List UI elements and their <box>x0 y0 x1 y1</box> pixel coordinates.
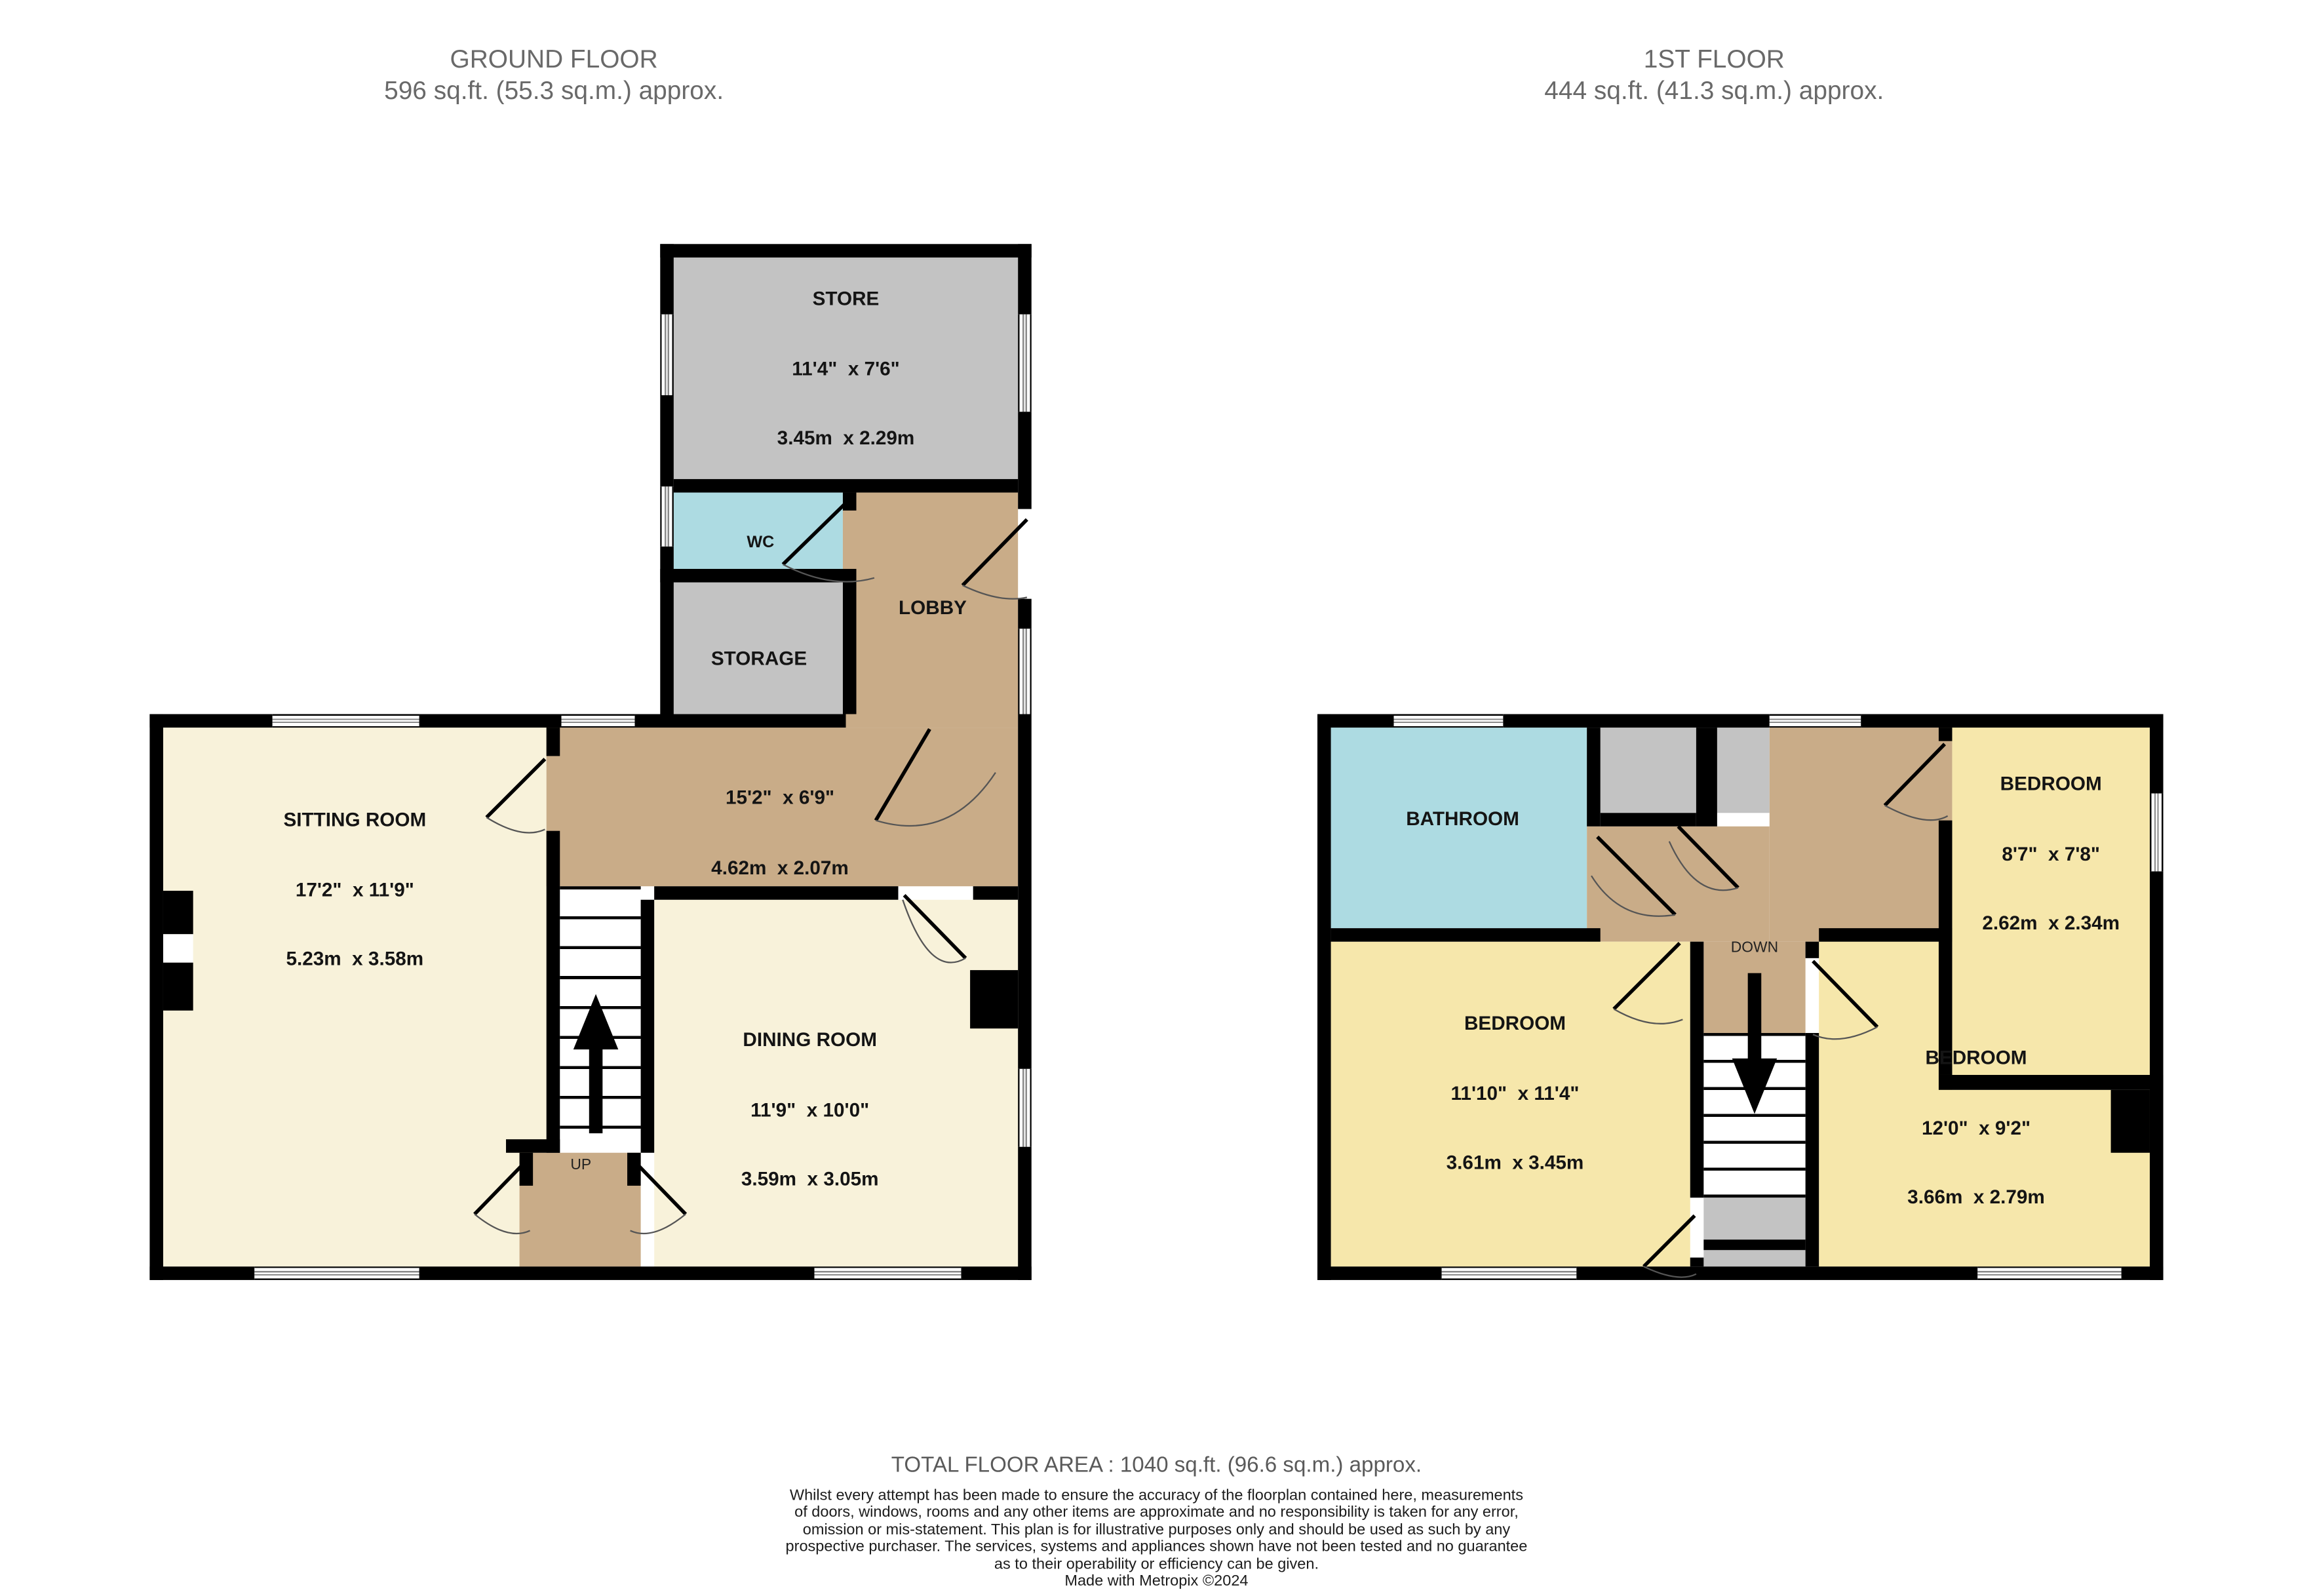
wall <box>627 1153 641 1186</box>
wall <box>1819 928 1952 942</box>
cupboard <box>1601 728 1696 813</box>
window <box>254 1266 419 1280</box>
ground-floor-area: 596 sq.ft. (55.3 sq.m.) approx. <box>180 75 928 106</box>
wall <box>660 395 674 486</box>
room-dims-imperial: 17'2" x 11'9" <box>283 878 426 901</box>
wall <box>660 244 674 314</box>
wall <box>419 1266 815 1280</box>
window <box>1442 1266 1577 1280</box>
wall <box>1587 728 1601 827</box>
wall <box>1331 928 1601 942</box>
up-label: UP <box>570 1121 591 1211</box>
room-name: DINING ROOM <box>741 1028 879 1051</box>
dining-room-label: DINING ROOM 11'9" x 10'0" 3.59m x 3.05m <box>741 982 879 1237</box>
wc-label: WC <box>747 495 774 592</box>
down-label: DOWN <box>1731 905 1778 994</box>
window <box>1018 1069 1032 1147</box>
room-name: LOBBY <box>899 596 967 619</box>
stair-direction: DOWN <box>1731 940 1778 958</box>
bathroom-label: BATHROOM <box>1406 761 1519 877</box>
wall <box>149 1266 254 1280</box>
wall <box>149 714 272 728</box>
stairs-down <box>1703 1033 1805 1197</box>
room-dims-metric: 4.62m x 2.07m <box>711 855 849 878</box>
disclaimer: Whilst every attempt has been made to en… <box>0 1488 2313 1590</box>
room-name: BEDROOM <box>1907 1046 2045 1069</box>
wall <box>520 1153 534 1186</box>
wall <box>1018 412 1032 509</box>
room-name: BEDROOM <box>1982 772 2120 795</box>
chimney-recess <box>163 934 193 962</box>
room-dims-imperial: 8'7" x 7'8" <box>1982 842 2120 865</box>
footer: TOTAL FLOOR AREA : 1040 sq.ft. (96.6 sq.… <box>0 1454 2313 1591</box>
wall <box>506 1139 560 1153</box>
credit-line: Made with Metropix ©2024 <box>0 1574 2313 1591</box>
storage-label: STORAGE <box>711 600 807 716</box>
stair-direction: UP <box>570 1158 591 1175</box>
room-dims-metric: 3.66m x 2.79m <box>1907 1185 2045 1208</box>
window <box>273 714 419 728</box>
ground-floor-title-block: GROUND FLOOR 596 sq.ft. (55.3 sq.m.) app… <box>180 45 928 107</box>
window <box>1018 629 1032 714</box>
disclaimer-line: as to their operability or efficiency ca… <box>0 1557 2313 1574</box>
wall <box>1018 244 1032 314</box>
room-name: STORAGE <box>711 647 807 670</box>
window <box>1018 315 1032 412</box>
wall <box>1703 1239 1805 1250</box>
wall <box>1806 942 1819 958</box>
wall <box>149 714 163 1280</box>
wall <box>1018 714 1032 1069</box>
window <box>660 315 674 395</box>
stair-cupboard <box>1703 1250 1805 1266</box>
wall <box>1018 1147 1032 1280</box>
wall <box>1317 714 1331 1280</box>
first-floor-title: 1ST FLOOR <box>1340 45 2088 76</box>
stairs-up <box>560 886 640 1153</box>
sitting-room-label: SITTING ROOM 17'2" x 11'9" 5.23m x 3.58m <box>283 762 426 1017</box>
room-dims-metric: 3.59m x 3.05m <box>741 1167 879 1190</box>
disclaimer-line: Whilst every attempt has been made to en… <box>0 1488 2313 1505</box>
wall <box>1690 1258 1704 1267</box>
window <box>1770 714 1861 728</box>
window <box>2150 794 2164 872</box>
window <box>660 486 674 546</box>
wall <box>973 886 1019 900</box>
room-dims-imperial: 12'0" x 9'2" <box>1907 1116 2045 1139</box>
wall <box>641 900 655 1153</box>
disclaimer-line: prospective purchaser. The services, sys… <box>0 1540 2313 1557</box>
room-name: STORE <box>777 287 915 310</box>
wall <box>547 728 560 756</box>
disclaimer-line: of doors, windows, rooms and any other i… <box>0 1505 2313 1522</box>
wall <box>1696 728 1717 827</box>
bedroom-left-label: BEDROOM 11'10" x 11'4" 3.61m x 3.45m <box>1447 965 1584 1220</box>
hallway-label: 15'2" x 6'9" 4.62m x 2.07m <box>711 739 849 925</box>
floorplan-drawing: GROUND FLOOR 596 sq.ft. (55.3 sq.m.) app… <box>0 0 2313 1596</box>
wall <box>1503 714 1770 728</box>
window <box>1393 714 1503 728</box>
cupboard <box>1717 728 1770 813</box>
window <box>562 714 635 728</box>
first-floor-area: 444 sq.ft. (41.3 sq.m.) approx. <box>1340 75 2088 106</box>
wall <box>1690 942 1704 1198</box>
window <box>1977 1266 2121 1280</box>
room-dims-metric: 5.23m x 3.58m <box>283 947 426 970</box>
wall <box>547 831 560 1153</box>
stair-cupboard <box>1703 1197 1805 1239</box>
bedroom-bottom-right-label: BEDROOM 12'0" x 9'2" 3.66m x 2.79m <box>1907 1000 2045 1255</box>
room-name: WC <box>747 534 774 553</box>
store-label: STORE 11'4" x 7'6" 3.45m x 2.29m <box>777 241 915 496</box>
lobby-label: LOBBY <box>899 550 967 666</box>
wall <box>2150 714 2164 794</box>
bedroom-top-right-label: BEDROOM 8'7" x 7'8" 2.62m x 2.34m <box>1982 726 2120 981</box>
room-dims-imperial: 11'9" x 10'0" <box>741 1098 879 1121</box>
room-dims-imperial: 11'4" x 7'6" <box>777 357 915 380</box>
room-dims-metric: 3.61m x 3.45m <box>1447 1151 1584 1174</box>
floorplan-page: GROUND FLOOR 596 sq.ft. (55.3 sq.m.) app… <box>0 0 2313 1596</box>
disclaimer-line: omission or mis-statement. This plan is … <box>0 1523 2313 1540</box>
window <box>815 1266 962 1280</box>
chimney-breast <box>970 970 1018 1028</box>
chimney-breast <box>163 963 193 1011</box>
ground-floor-title: GROUND FLOOR <box>180 45 928 76</box>
landing <box>1770 728 1953 942</box>
room-name: BATHROOM <box>1406 808 1519 830</box>
wall <box>843 583 857 714</box>
total-floor-area: TOTAL FLOOR AREA : 1040 sq.ft. (96.6 sq.… <box>0 1454 2313 1478</box>
room-name: BEDROOM <box>1447 1011 1584 1034</box>
room-dims-imperial: 11'10" x 11'4" <box>1447 1081 1584 1104</box>
room-dims-metric: 3.45m x 2.29m <box>777 426 915 449</box>
wall <box>1601 813 1696 827</box>
room-dims-imperial: 15'2" x 6'9" <box>711 786 849 809</box>
room-name: SITTING ROOM <box>283 808 426 831</box>
chimney-breast <box>163 891 193 934</box>
room-dims-metric: 2.62m x 2.34m <box>1982 911 2120 934</box>
wall <box>419 714 562 728</box>
wall <box>1576 1266 1977 1280</box>
wall <box>1018 599 1032 629</box>
first-floor-title-block: 1ST FLOOR 444 sq.ft. (41.3 sq.m.) approx… <box>1340 45 2088 107</box>
chimney-breast <box>2111 1090 2150 1153</box>
wall <box>1317 1266 1442 1280</box>
wall <box>1806 1033 1819 1266</box>
wall <box>1939 728 1953 741</box>
